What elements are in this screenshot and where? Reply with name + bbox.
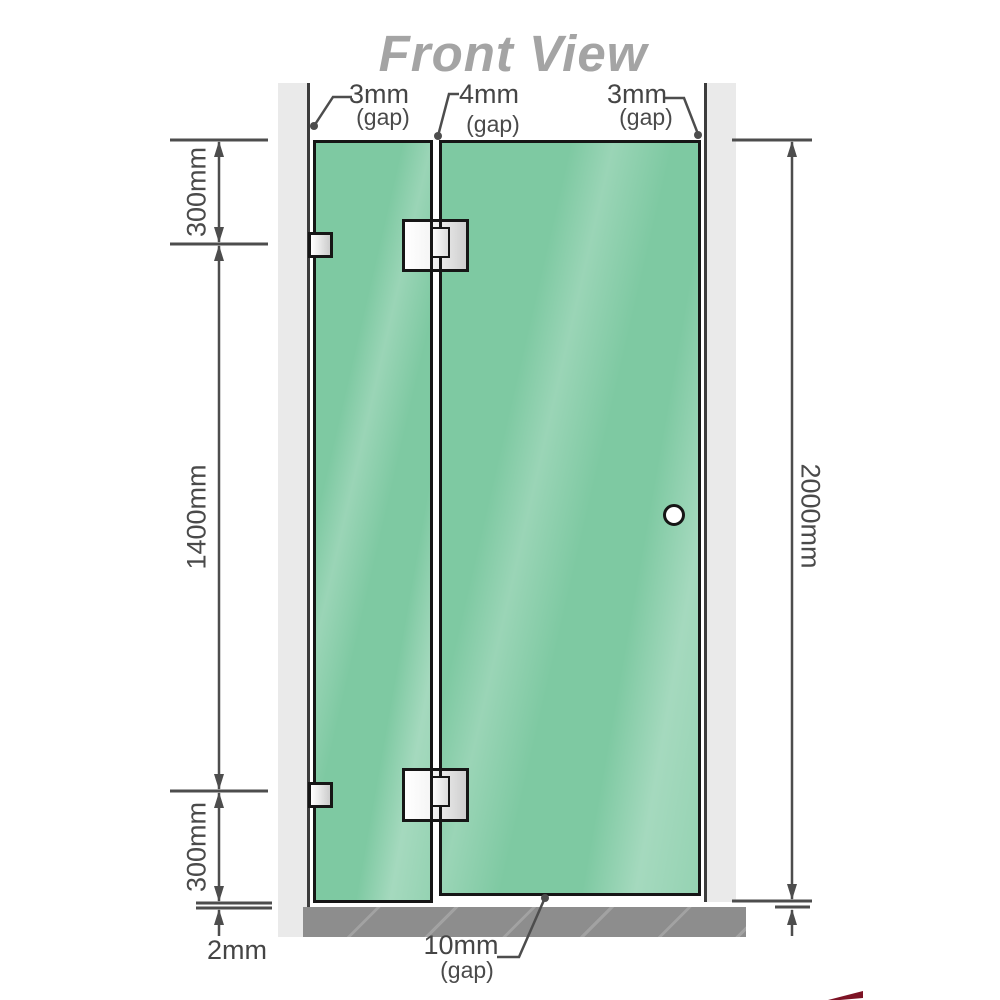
leader-dots [310, 122, 702, 902]
gap-label-middle: 4mm [459, 81, 519, 108]
dimension-lines [219, 142, 792, 936]
front-view-diagram: Front View [0, 0, 1000, 1000]
dimension-annotations [0, 0, 1000, 1000]
dimension-arrowheads [214, 141, 797, 925]
dim-label-top-300: 300mm [184, 147, 211, 237]
floor-gap-label-10mm: 10mm [423, 932, 498, 959]
leader-lines [314, 94, 698, 957]
dim-label-bot-300: 300mm [184, 802, 211, 892]
gap-label-middle-suffix: (gap) [466, 113, 520, 136]
dim-label-1400: 1400mm [184, 464, 211, 569]
corner-accent [828, 991, 863, 1000]
dim-label-2000: 2000mm [797, 463, 824, 568]
floor-gap-label-suffix: (gap) [440, 959, 494, 982]
floor-gap-label-2mm: 2mm [207, 937, 267, 964]
dimension-ticks [170, 140, 812, 908]
gap-label-right-suffix: (gap) [619, 106, 673, 129]
gap-label-left-suffix: (gap) [356, 106, 410, 129]
